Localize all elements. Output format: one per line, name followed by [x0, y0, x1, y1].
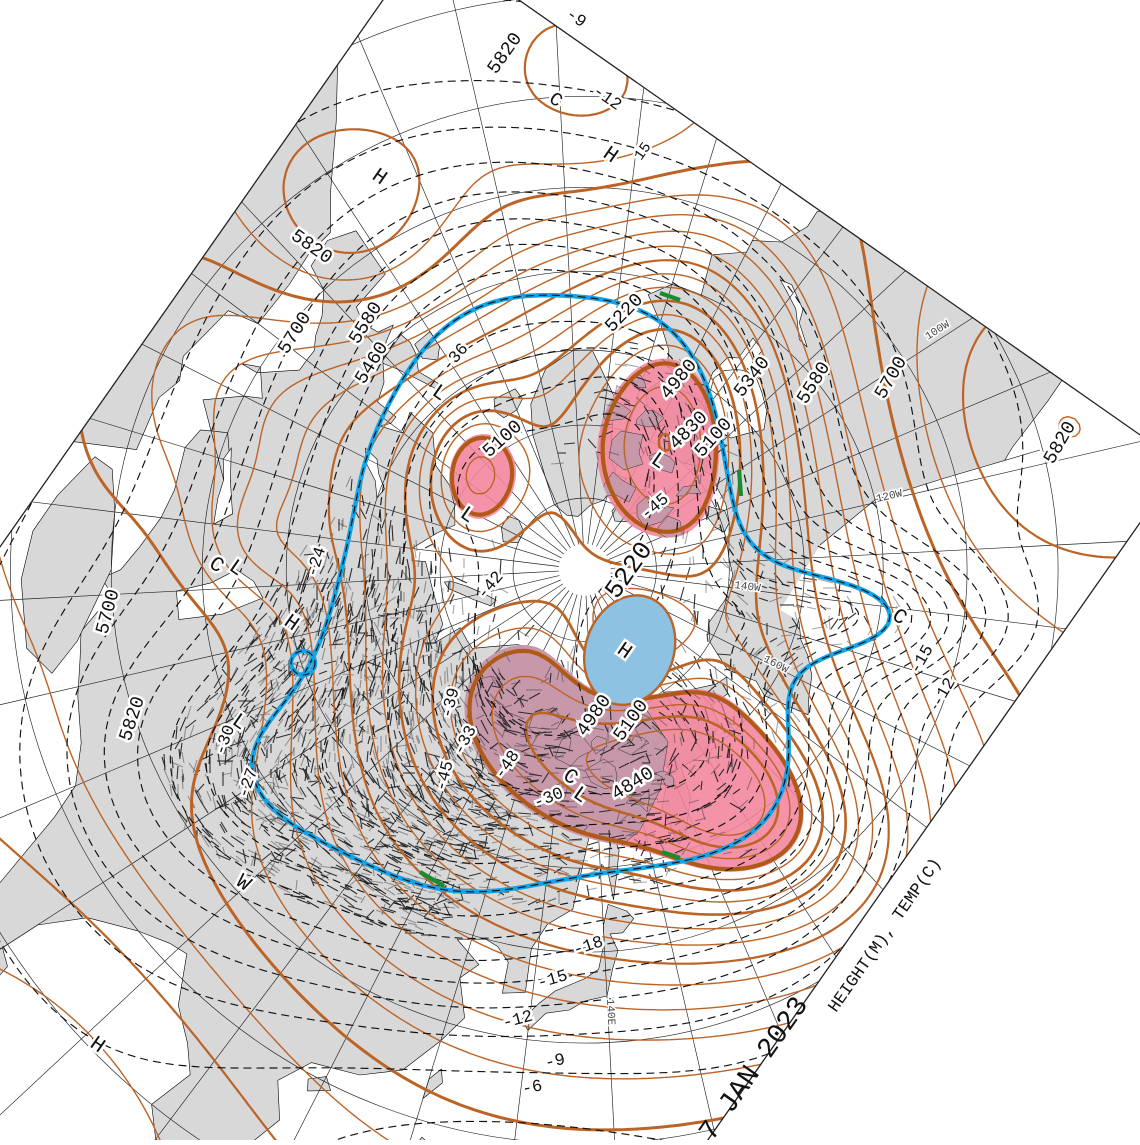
svg-text:140E: 140E	[603, 999, 616, 1026]
svg-text:-6: -6	[521, 1077, 545, 1100]
